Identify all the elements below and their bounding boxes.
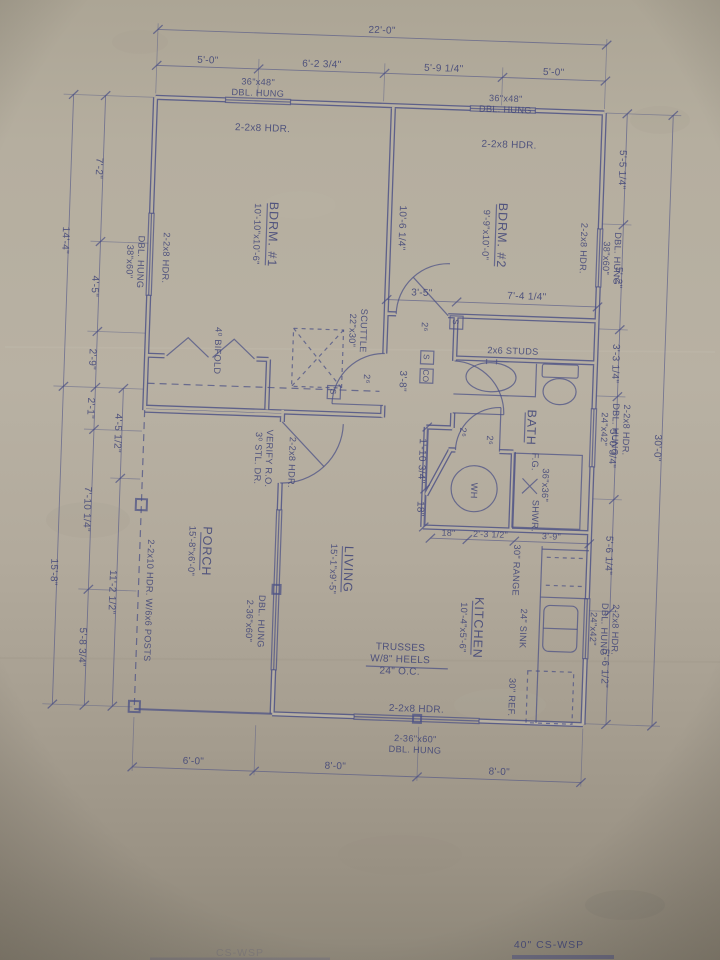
blueprint-photo: 22'-0" 5'-0" 6'-2 3/4" 5'-9 1/4" 5'-0" 3… [0, 0, 720, 960]
photo-vignette [0, 0, 720, 960]
floor-plan-svg: 22'-0" 5'-0" 6'-2 3/4" 5'-9 1/4" 5'-0" 3… [0, 0, 720, 960]
